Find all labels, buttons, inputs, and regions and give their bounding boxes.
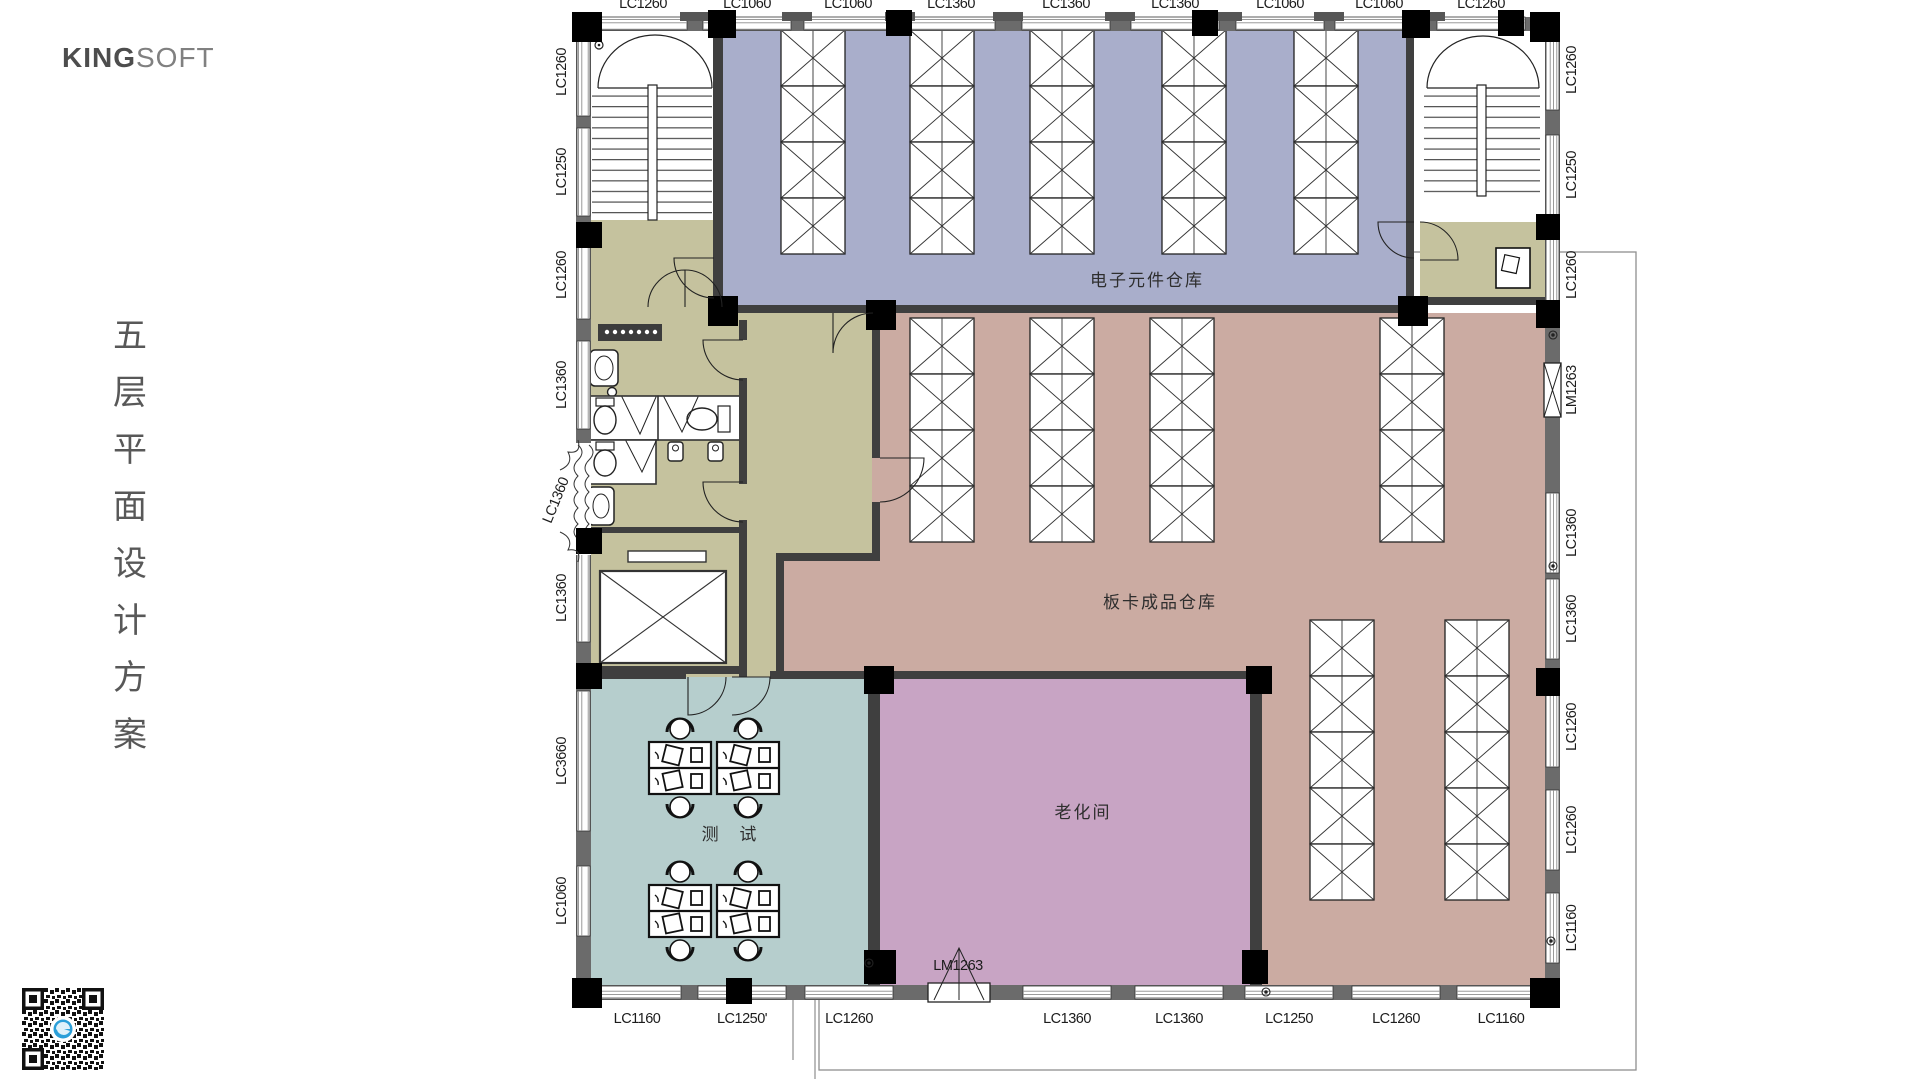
dim-label: LC1250 [554, 148, 570, 196]
dim-label: LC1060 [1256, 0, 1304, 12]
dim-label: LC1260 [825, 1011, 873, 1027]
dim-label: LC1060 [824, 0, 872, 12]
dim-label: LC1260 [619, 0, 667, 12]
dim-label: LC1160 [1478, 1011, 1525, 1027]
dim-label: LC1260 [554, 251, 570, 299]
dim-label: LC1360 [1564, 595, 1580, 643]
slide: { "brand": { "name_bold": "KING", "name_… [0, 0, 1920, 1079]
dim-label: LC1060 [1355, 0, 1403, 12]
label-test-room: 测 试 [702, 825, 765, 844]
dim-label: LC1260 [1564, 251, 1580, 299]
dim-label: LC1160 [1564, 904, 1580, 951]
vestibule-desk [1496, 248, 1530, 288]
dim-label: LC1250' [717, 1011, 768, 1027]
windows-top [599, 12, 1525, 30]
dim-label: LM1263 [1564, 365, 1580, 415]
dim-label: LC1360 [1155, 1011, 1203, 1027]
dim-label: LC1160 [614, 1011, 661, 1027]
dim-label: LC1250 [1564, 151, 1580, 199]
door-right-lm1263 [1544, 363, 1561, 417]
room-aging [880, 677, 1256, 986]
dim-label: LC1360 [1564, 509, 1580, 557]
dim-labels-top: LC1260 LC1060 LC1060 LC1360 LC1360 LC136… [619, 0, 1505, 12]
dim-label: LC1260 [1457, 0, 1505, 12]
dim-label: LC1060 [554, 877, 570, 925]
dim-label: LC1360 [927, 0, 975, 12]
dim-label: LC1260 [1564, 46, 1580, 94]
dim-label: LM1263 [933, 958, 983, 974]
dim-label: LC1260 [554, 48, 570, 96]
toilet-icon [594, 406, 616, 434]
toilet-icon [594, 450, 616, 476]
label-board-warehouse: 板卡成品仓库 [1103, 593, 1217, 612]
dim-label: LC1260 [1564, 806, 1580, 854]
dim-label: LC1360 [540, 475, 573, 526]
dim-label: LC1260 [1372, 1011, 1420, 1027]
dim-label: LC1360 [1151, 0, 1199, 12]
floor-plan: 电子元件仓库 板卡成品仓库 老化间 测 试 LC1260 LC1060 LC10… [0, 0, 1920, 1079]
dim-label: LC1060 [723, 0, 771, 12]
dim-label: LC1360 [554, 574, 570, 622]
dim-label: LC1360 [1042, 0, 1090, 12]
dim-label: LC3660 [554, 737, 570, 785]
label-aging-room: 老化间 [1055, 803, 1112, 822]
dim-labels-right: LC1260 LC1250 LC1260 LM1263 LC1360 LC136… [1564, 46, 1580, 952]
dim-label: LC1360 [554, 361, 570, 409]
dim-label: LC1260 [1564, 703, 1580, 751]
dim-label: LC1360 [1043, 1011, 1091, 1027]
windows-right [1544, 30, 1561, 963]
dim-label: LC1250 [1265, 1011, 1313, 1027]
label-electronics-warehouse: 电子元件仓库 [1090, 271, 1204, 290]
